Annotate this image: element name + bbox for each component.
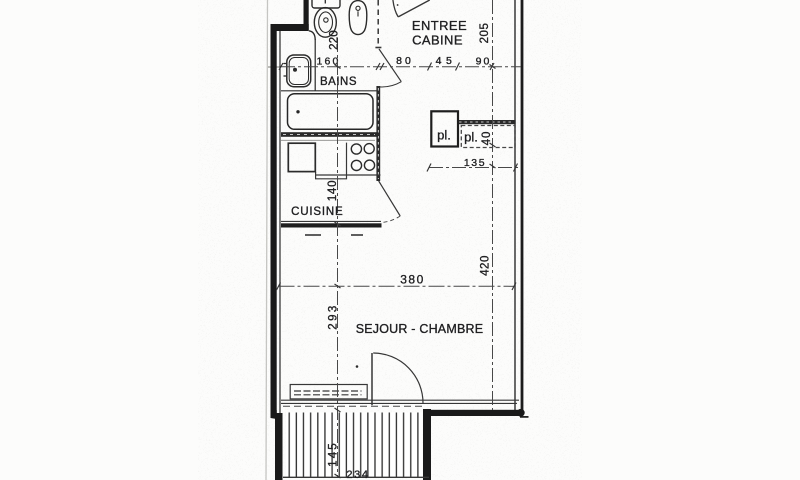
svg-text:293: 293 (328, 303, 340, 329)
svg-text:80: 80 (396, 55, 414, 67)
svg-text:CABINE: CABINE (412, 33, 463, 48)
svg-text:SEJOUR - CHAMBRE: SEJOUR - CHAMBRE (356, 322, 484, 336)
svg-text:420: 420 (480, 255, 492, 276)
svg-text:135: 135 (464, 157, 486, 169)
svg-text:BAINS: BAINS (320, 76, 357, 88)
svg-text:220: 220 (329, 30, 341, 50)
svg-text:pl.: pl. (437, 128, 451, 143)
svg-text:205: 205 (479, 23, 491, 44)
svg-text:pl.: pl. (464, 130, 478, 145)
svg-text:234: 234 (346, 469, 369, 480)
svg-text:40: 40 (481, 131, 493, 146)
svg-text:90: 90 (476, 56, 492, 68)
svg-text:140: 140 (327, 180, 339, 202)
svg-text:380: 380 (400, 273, 425, 287)
svg-text:145: 145 (328, 441, 340, 467)
svg-text:45: 45 (436, 55, 457, 67)
svg-text:ENTREE: ENTREE (412, 18, 467, 33)
svg-text:CUISINE: CUISINE (291, 206, 343, 218)
